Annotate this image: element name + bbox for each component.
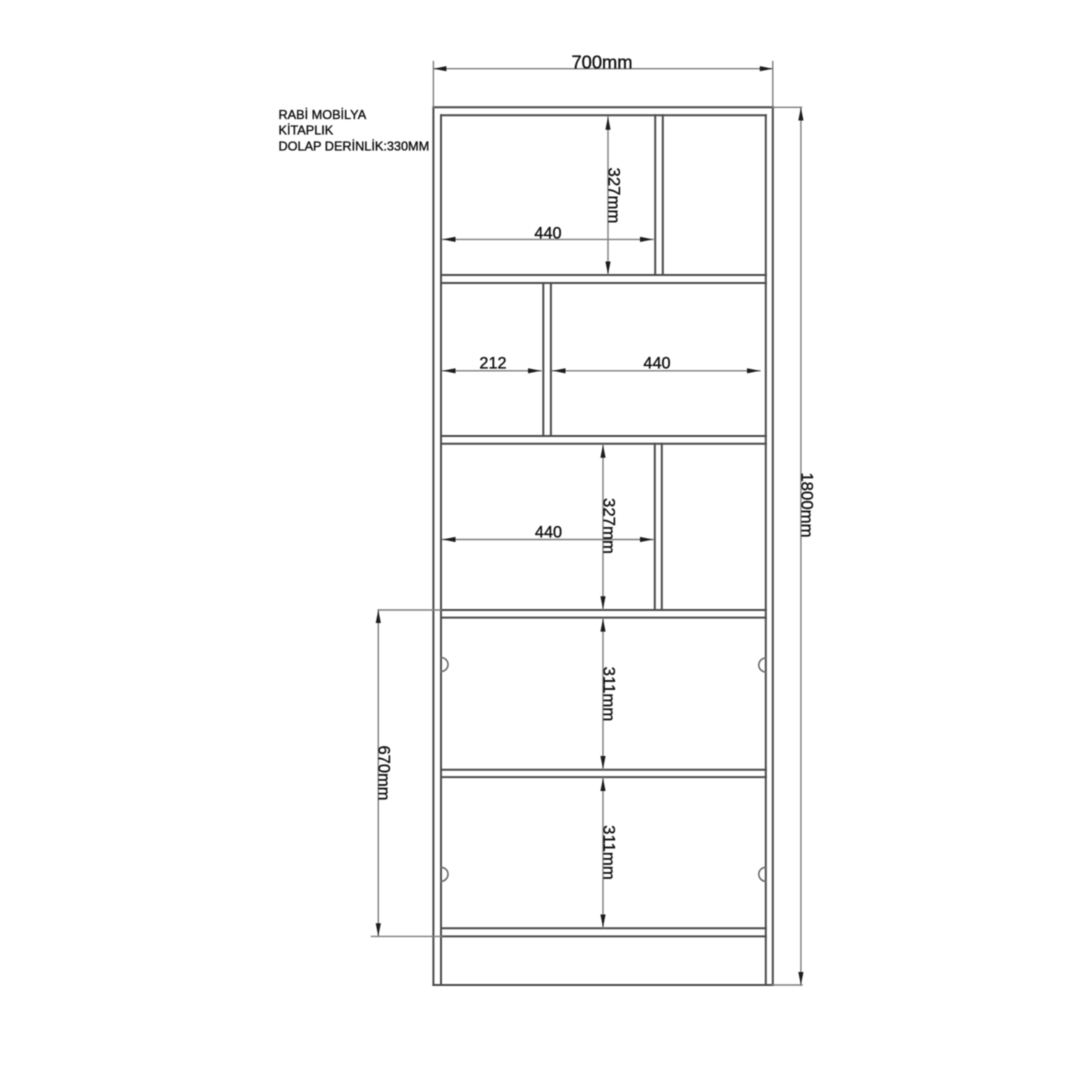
svg-text:311mm: 311mm (599, 667, 618, 722)
svg-text:700mm: 700mm (572, 51, 633, 72)
svg-text:212: 212 (479, 355, 506, 373)
svg-text:DOLAP DERİNLİK:330MM: DOLAP DERİNLİK:330MM (279, 140, 430, 154)
svg-text:670mm: 670mm (375, 745, 393, 800)
svg-text:440: 440 (534, 224, 561, 242)
svg-text:327mm: 327mm (599, 498, 618, 554)
svg-text:440: 440 (535, 524, 562, 542)
svg-text:1800mm: 1800mm (797, 472, 816, 537)
svg-text:440: 440 (643, 355, 670, 373)
svg-text:327mm: 327mm (604, 168, 623, 224)
svg-text:KİTAPLIK: KİTAPLIK (279, 124, 334, 138)
svg-text:RABİ MOBİLYA: RABİ MOBİLYA (279, 108, 367, 122)
svg-text:311mm: 311mm (599, 825, 618, 880)
